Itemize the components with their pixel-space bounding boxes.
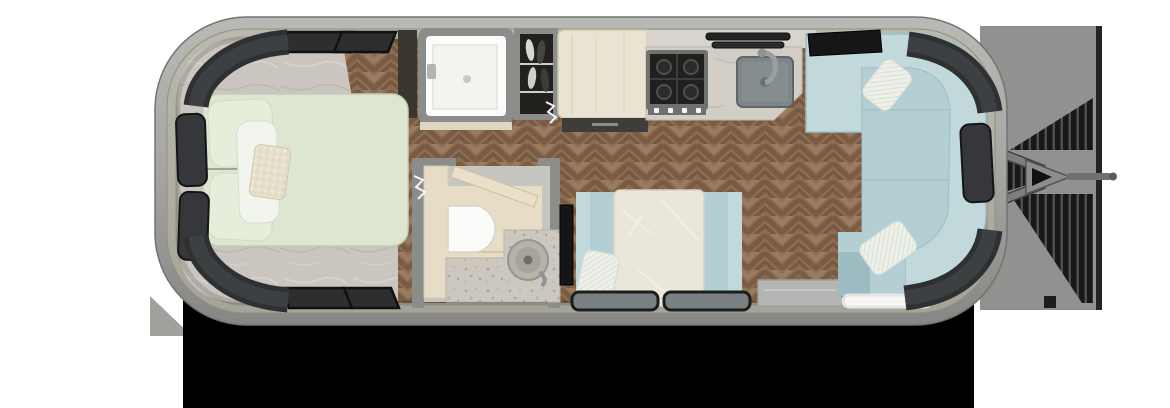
cooktop-knob-3 bbox=[682, 108, 687, 113]
entry-step-well bbox=[758, 280, 842, 306]
kitchen-galley bbox=[646, 30, 816, 120]
burner-2 bbox=[684, 60, 698, 74]
shower-drain bbox=[463, 75, 471, 83]
burner-4 bbox=[684, 85, 698, 99]
travel-trailer-floorplan bbox=[0, 0, 1170, 408]
kitchen-faucet-base bbox=[758, 49, 767, 58]
bedroom-window-top-2 bbox=[334, 32, 396, 52]
hitch-jack-rod bbox=[1066, 173, 1112, 180]
toilet bbox=[448, 206, 495, 252]
front-side-window bbox=[960, 123, 994, 202]
dinette-tv bbox=[560, 205, 573, 285]
lounge-tv bbox=[808, 30, 882, 56]
bedroom-window-bottom-1 bbox=[281, 288, 352, 308]
bathroom-wood-panel bbox=[424, 166, 448, 298]
refrigerator bbox=[558, 30, 652, 132]
burner-3 bbox=[657, 85, 671, 99]
dinette-table bbox=[614, 190, 704, 306]
galley-window-upper bbox=[706, 33, 790, 40]
dinette-window-1 bbox=[572, 292, 658, 310]
bedroom-window-bottom-2 bbox=[344, 288, 399, 308]
shower-fixture bbox=[427, 64, 436, 79]
dinette bbox=[560, 190, 742, 306]
cooktop-knob-1 bbox=[654, 108, 659, 113]
hitch-jack-handle bbox=[1109, 173, 1117, 181]
shower-threshold bbox=[420, 122, 512, 130]
cooktop-knob-4 bbox=[696, 108, 701, 113]
wardrobe-closet bbox=[514, 28, 558, 123]
dinette-bench-right-back bbox=[728, 192, 742, 300]
cooktop-knob-2 bbox=[668, 108, 673, 113]
rear-side-window-1 bbox=[176, 113, 207, 186]
burner-1 bbox=[657, 60, 671, 74]
bathroom bbox=[412, 158, 560, 308]
shower-room bbox=[418, 28, 514, 130]
bed-pillow-accent bbox=[249, 144, 292, 201]
hitch-platform-edge bbox=[1096, 26, 1102, 310]
refrigerator-drawer-handle bbox=[592, 123, 618, 126]
dinette-window-2 bbox=[664, 292, 750, 310]
hitch-shadow-mark bbox=[1044, 296, 1056, 308]
entry-area bbox=[758, 280, 842, 306]
galley-window-lower bbox=[712, 42, 784, 48]
vessel-sink-drain bbox=[524, 256, 533, 265]
floorplan-stage bbox=[0, 0, 1170, 408]
